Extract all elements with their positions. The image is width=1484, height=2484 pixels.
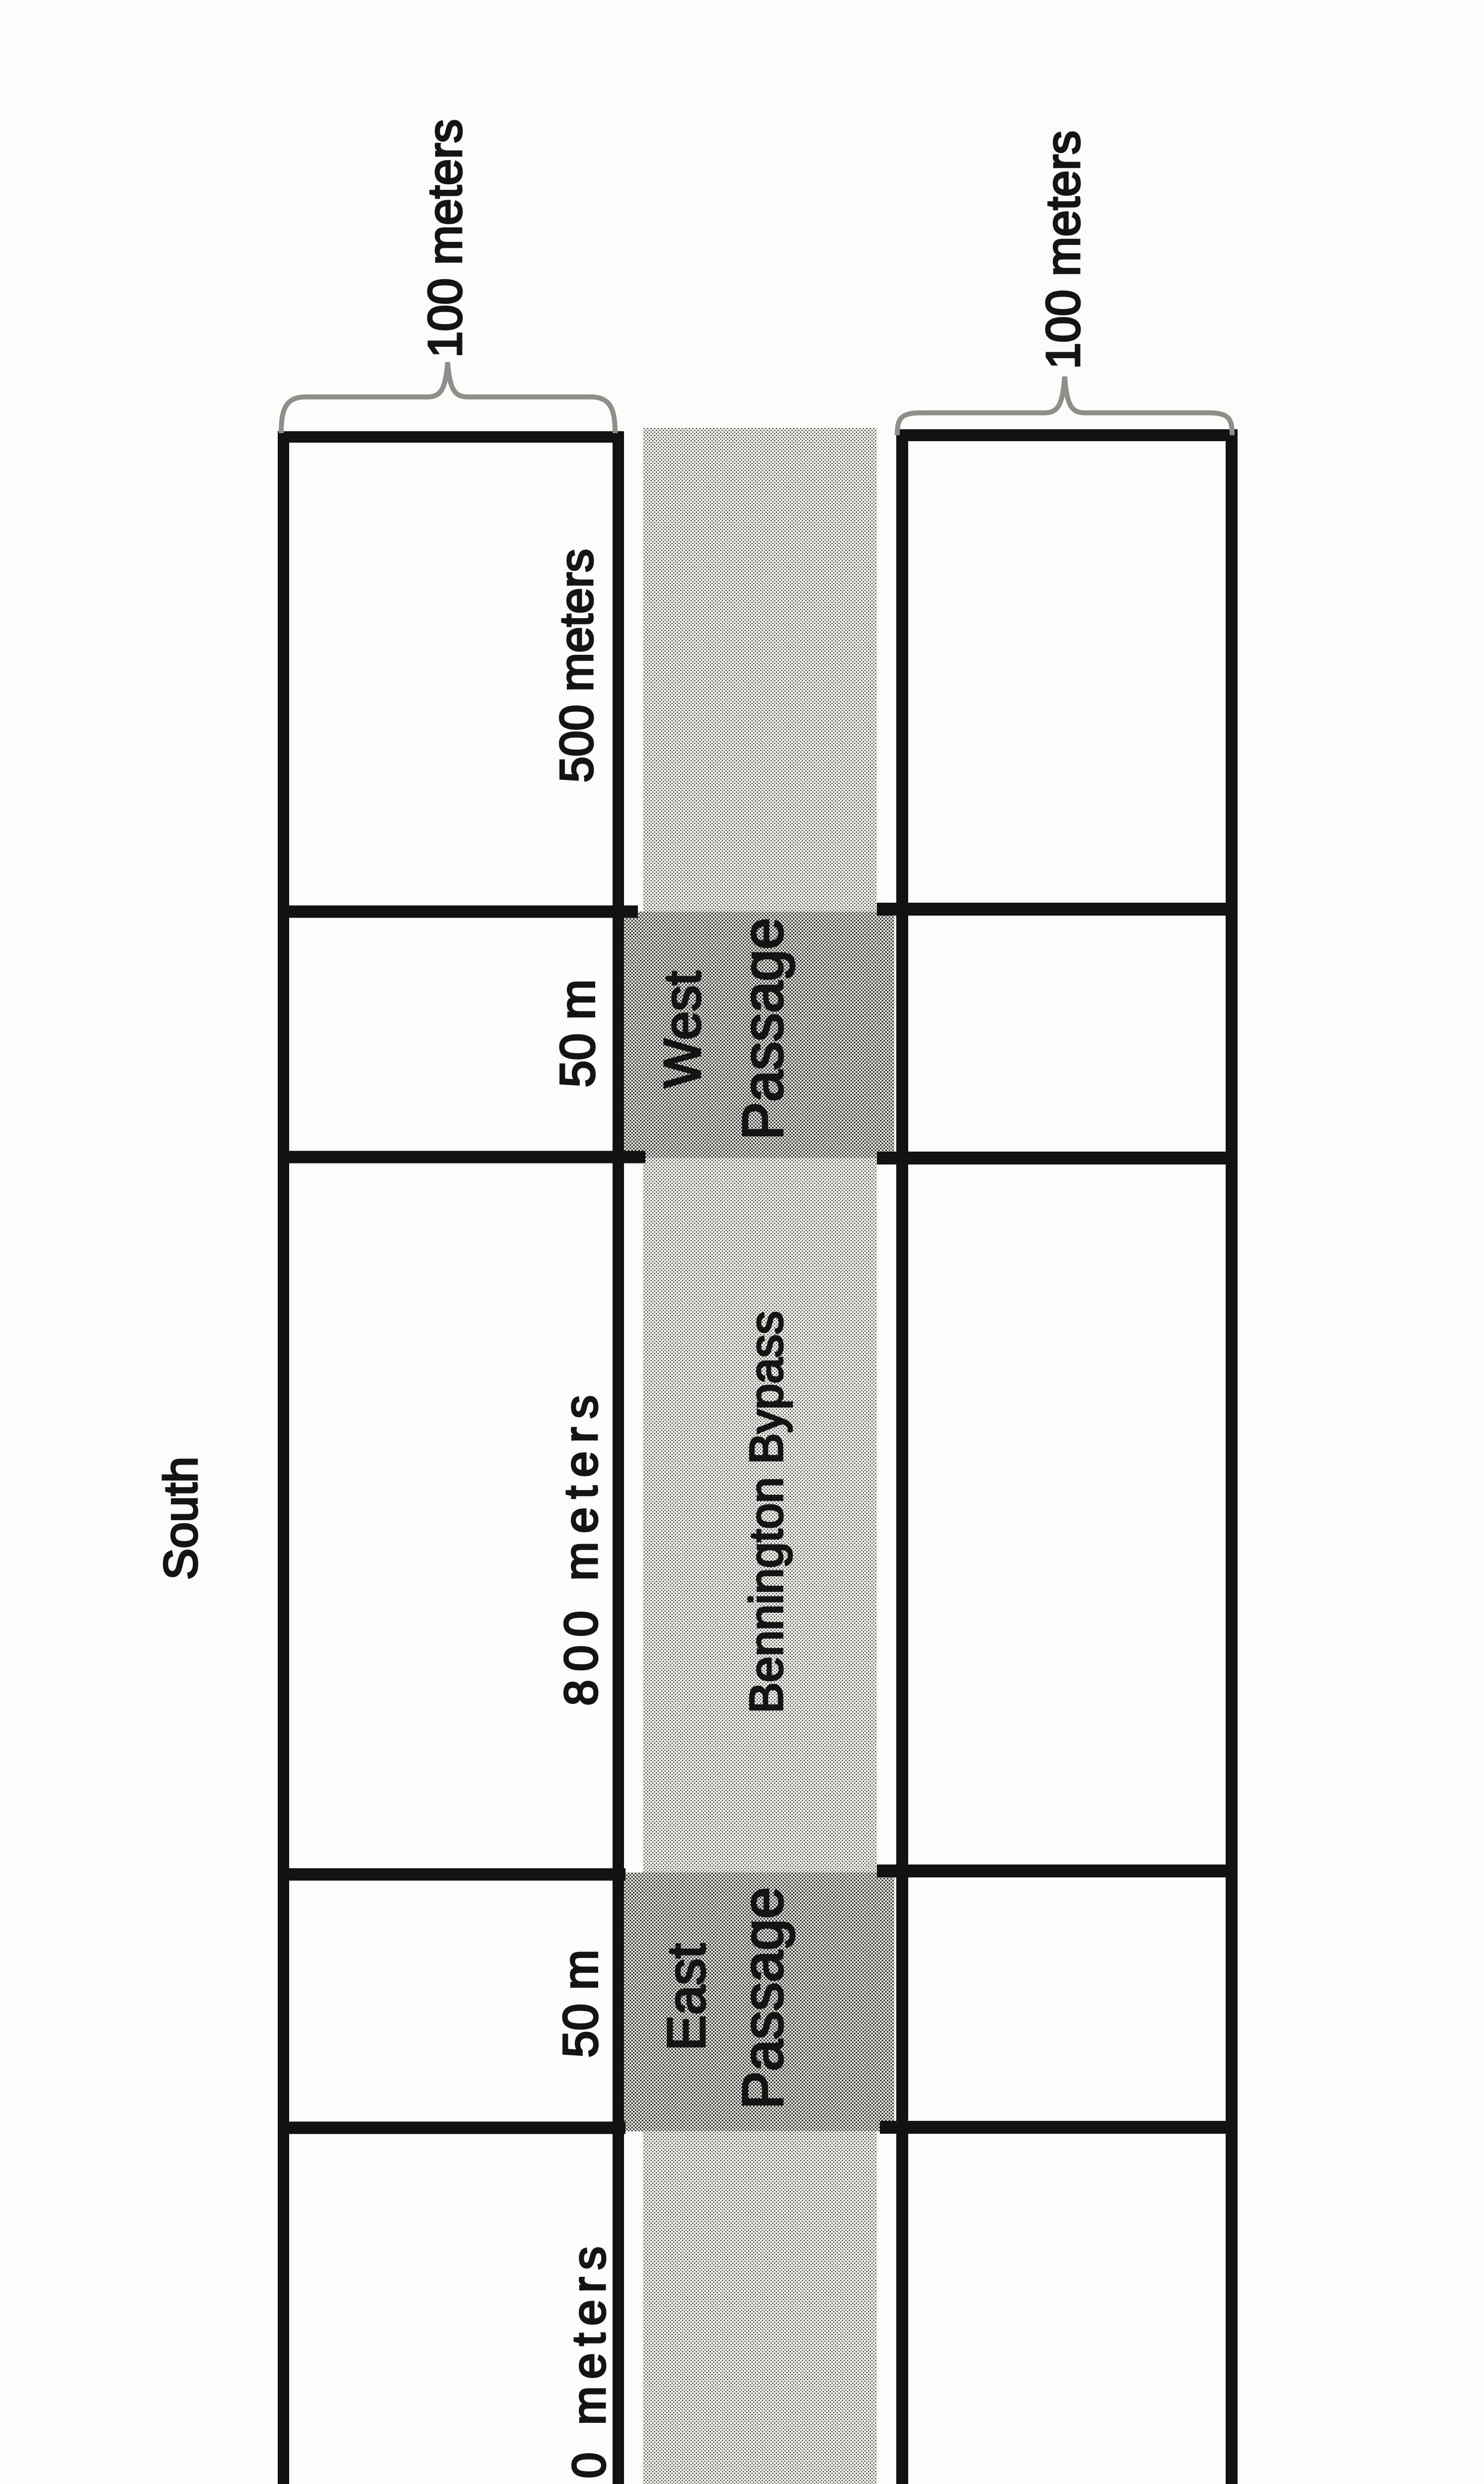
svg-text:100 meters: 100 meters [419, 119, 472, 358]
svg-text:South: South [155, 1457, 207, 1580]
svg-text:500 meters: 500 meters [550, 549, 603, 782]
svg-text:Passage: Passage [731, 1887, 795, 2109]
svg-text:Bennington Bypass: Bennington Bypass [740, 1311, 792, 1713]
svg-text:West: West [654, 971, 711, 1087]
svg-text:East: East [656, 1943, 716, 2051]
svg-text:50 m: 50 m [553, 1949, 608, 2058]
svg-text:Passage: Passage [731, 918, 795, 1140]
svg-text:800 meters: 800 meters [555, 1396, 607, 1706]
svg-text:100 meters: 100 meters [1037, 131, 1090, 369]
svg-text:50 m: 50 m [550, 979, 605, 1087]
